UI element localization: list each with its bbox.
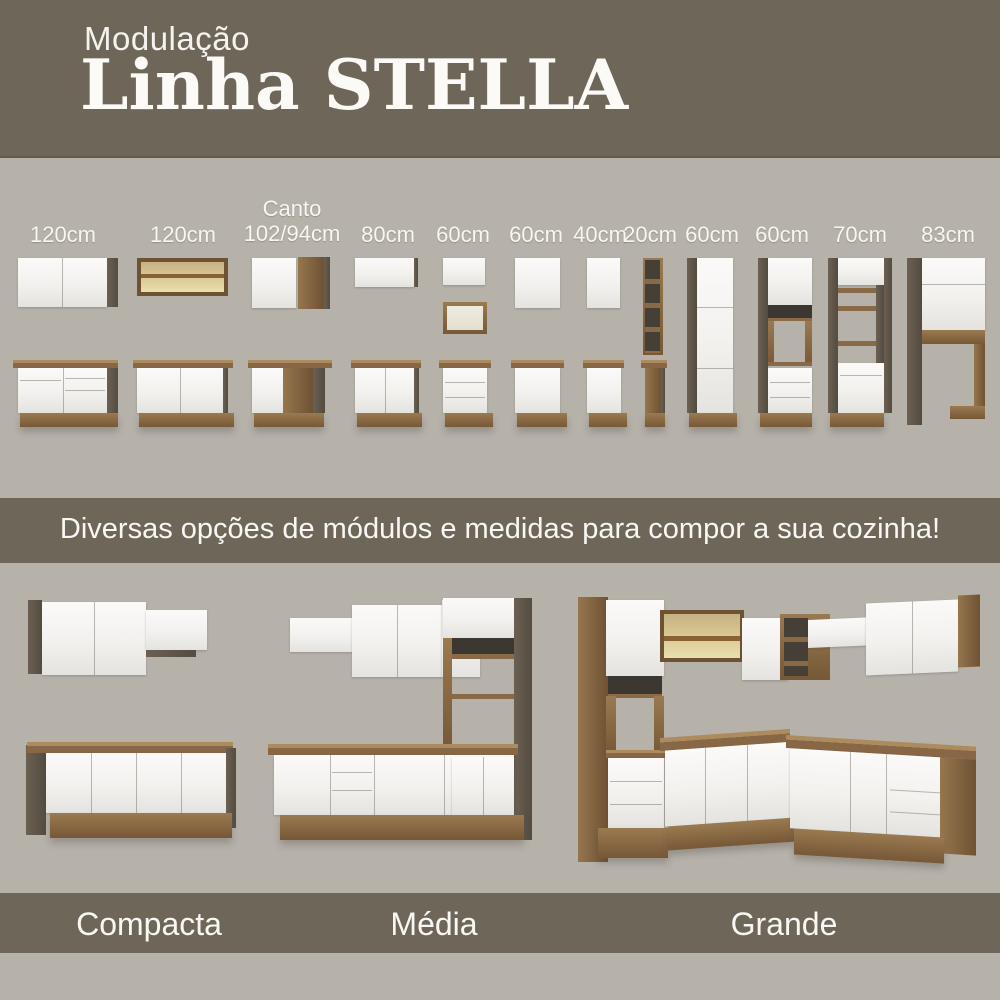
base-run-right — [786, 735, 986, 877]
door-gap — [483, 757, 484, 815]
side-panel — [958, 594, 980, 667]
banner-text: Diversas opções de módulos e medidas par… — [0, 513, 1000, 546]
frame-column — [443, 638, 452, 750]
corner-door — [283, 368, 313, 416]
plinth — [689, 413, 737, 427]
kitchen-label-compacta: Compacta — [76, 906, 222, 943]
countertop — [351, 360, 421, 368]
wall-cabinet — [587, 258, 620, 308]
countertop — [27, 742, 233, 753]
door-gap — [63, 368, 64, 413]
module-size-label-line2: 102/94cm — [244, 221, 341, 246]
plinth — [517, 413, 567, 427]
module-size-label: 70cm — [810, 222, 910, 247]
plinth — [830, 413, 884, 427]
countertop — [13, 360, 118, 368]
open-shelves — [784, 618, 808, 676]
upper-door — [838, 258, 884, 285]
side-panel — [828, 258, 838, 413]
open-niche — [608, 676, 662, 696]
countertop — [511, 360, 564, 368]
drawer-gap — [770, 382, 810, 383]
side-panel — [107, 368, 118, 413]
drawer-gap — [445, 382, 485, 383]
tall-cabinet — [697, 258, 733, 413]
drawer-gap — [65, 378, 105, 379]
tower-upper-cabinet — [443, 598, 514, 638]
side-panel — [324, 257, 330, 309]
base-run-left — [660, 728, 800, 858]
module-size-label-line1: Canto — [263, 196, 322, 221]
base-cabinet — [587, 368, 621, 413]
side-panel — [414, 258, 418, 287]
side-panel — [313, 368, 325, 413]
upper-cabinet — [922, 258, 985, 330]
side-panel — [687, 258, 697, 413]
drawer-gap — [610, 781, 662, 782]
wall-cabinet — [252, 258, 296, 308]
corner-panel — [298, 257, 324, 309]
countertop — [133, 360, 233, 368]
door-gap — [697, 368, 733, 369]
module-size-label: 83cm — [898, 222, 998, 247]
door-gap — [91, 753, 92, 813]
plinth — [254, 413, 324, 427]
side-panel — [223, 368, 228, 413]
door-gap — [385, 368, 386, 413]
door-gap — [912, 601, 913, 673]
door-gap — [136, 753, 137, 813]
side-panel — [940, 757, 976, 855]
base-cabinet — [645, 368, 661, 413]
wall-cabinet — [515, 258, 560, 308]
base-cabinet — [515, 368, 560, 413]
drawer-gap — [332, 790, 372, 791]
open-niche — [452, 638, 514, 654]
door-gap — [444, 755, 445, 815]
kitchen-label-media: Média — [390, 906, 477, 943]
base-cabinet-run — [665, 742, 790, 827]
module-size-label: 120cm — [13, 222, 113, 247]
plinth — [598, 828, 668, 858]
door-gap — [747, 745, 748, 821]
open-shelves — [645, 260, 660, 353]
frame-column — [768, 321, 774, 366]
door-gap — [922, 284, 985, 285]
shelf — [141, 274, 224, 278]
drawer-gap — [65, 390, 105, 391]
tower-upper-door — [606, 600, 664, 676]
door-gap — [330, 755, 331, 815]
wall-cabinet-step — [808, 617, 866, 648]
countertop — [268, 744, 518, 755]
tower-drawers — [608, 758, 664, 828]
wall-cabinet — [355, 258, 414, 287]
frame-column — [805, 321, 812, 366]
countertop — [439, 360, 491, 368]
drawer-gap — [840, 375, 882, 376]
page: Modulação Linha STELLA 120cm 120cm — [0, 0, 1000, 1000]
plinth — [357, 413, 422, 427]
right-wall-run — [808, 590, 988, 688]
base-drawers — [443, 368, 487, 413]
plinth — [760, 413, 812, 427]
shelf — [452, 654, 514, 659]
door-gap — [181, 753, 182, 813]
lower-door — [838, 363, 884, 413]
inner-panel — [876, 285, 884, 363]
plinth — [139, 413, 234, 427]
tower-side-panel — [514, 598, 532, 840]
cabinet-underside — [146, 650, 196, 657]
kitchen-label-grande: Grande — [731, 906, 838, 943]
upper-door — [768, 258, 812, 305]
countertop — [606, 750, 668, 758]
countertop — [583, 360, 624, 368]
frame-column — [974, 344, 985, 410]
side-panel — [661, 368, 665, 413]
countertop — [248, 360, 332, 368]
page-title: Linha STELLA — [80, 50, 628, 122]
plinth — [645, 413, 665, 427]
door-gap — [705, 748, 706, 824]
modules-section: 120cm 120cm Canto102/94 — [0, 158, 1000, 498]
side-panel — [884, 258, 892, 413]
plinth — [280, 815, 524, 840]
base-corner-panel — [252, 368, 283, 413]
wall-cabinet-step — [290, 618, 352, 652]
frame-column — [606, 696, 616, 754]
drawer-gap — [445, 397, 485, 398]
door-gap — [850, 752, 851, 832]
base-drawers — [768, 368, 812, 413]
drawer-gap — [610, 804, 662, 805]
base-cabinet-run — [790, 748, 942, 837]
module-size-label: Canto102/94cm — [242, 196, 342, 246]
door-gap — [374, 755, 375, 815]
shelf — [452, 694, 514, 699]
wall-cabinet — [443, 258, 485, 285]
countertop — [641, 360, 667, 368]
header-band: Modulação Linha STELLA — [0, 0, 1000, 158]
door-gap — [94, 602, 95, 675]
drawer-gap — [332, 772, 372, 773]
plinth — [20, 413, 118, 427]
side-panel — [758, 258, 768, 413]
open-niche — [447, 306, 483, 330]
base-rail — [950, 406, 985, 419]
plinth — [589, 413, 627, 427]
door-gap — [180, 368, 181, 413]
module-size-label: 120cm — [133, 222, 233, 247]
shelf — [922, 330, 985, 344]
side-panel — [26, 745, 46, 835]
shelf — [768, 362, 812, 366]
drawer-gap — [20, 380, 61, 381]
door-gap — [62, 258, 63, 307]
plinth — [50, 813, 232, 838]
side-panel — [907, 258, 922, 425]
side-panel — [28, 600, 42, 674]
shelf — [664, 636, 740, 641]
drawer-gap — [770, 397, 810, 398]
wall-cabinet-step — [146, 610, 207, 650]
door-gap — [397, 605, 398, 677]
side-panel — [107, 258, 118, 307]
side-panel — [414, 368, 419, 413]
kitchens-section — [0, 563, 1000, 893]
door-gap — [697, 307, 733, 308]
plinth — [445, 413, 493, 427]
door-gap — [886, 754, 887, 834]
tower-side-panel — [578, 597, 608, 862]
